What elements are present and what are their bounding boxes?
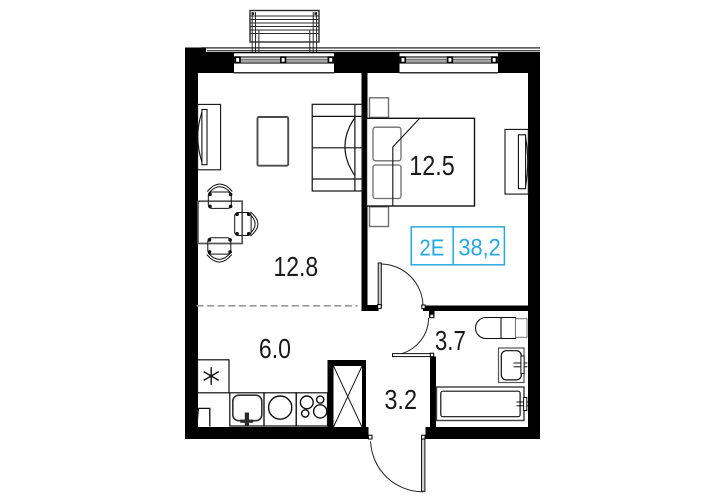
svg-text:12.5: 12.5 (409, 151, 454, 181)
svg-text:2E: 2E (419, 234, 444, 260)
svg-text:6.0: 6.0 (259, 334, 291, 364)
svg-text:3.7: 3.7 (435, 326, 466, 357)
svg-text:12.8: 12.8 (273, 252, 318, 282)
svg-text:38,2: 38,2 (458, 233, 500, 260)
svg-text:3.2: 3.2 (384, 385, 417, 415)
